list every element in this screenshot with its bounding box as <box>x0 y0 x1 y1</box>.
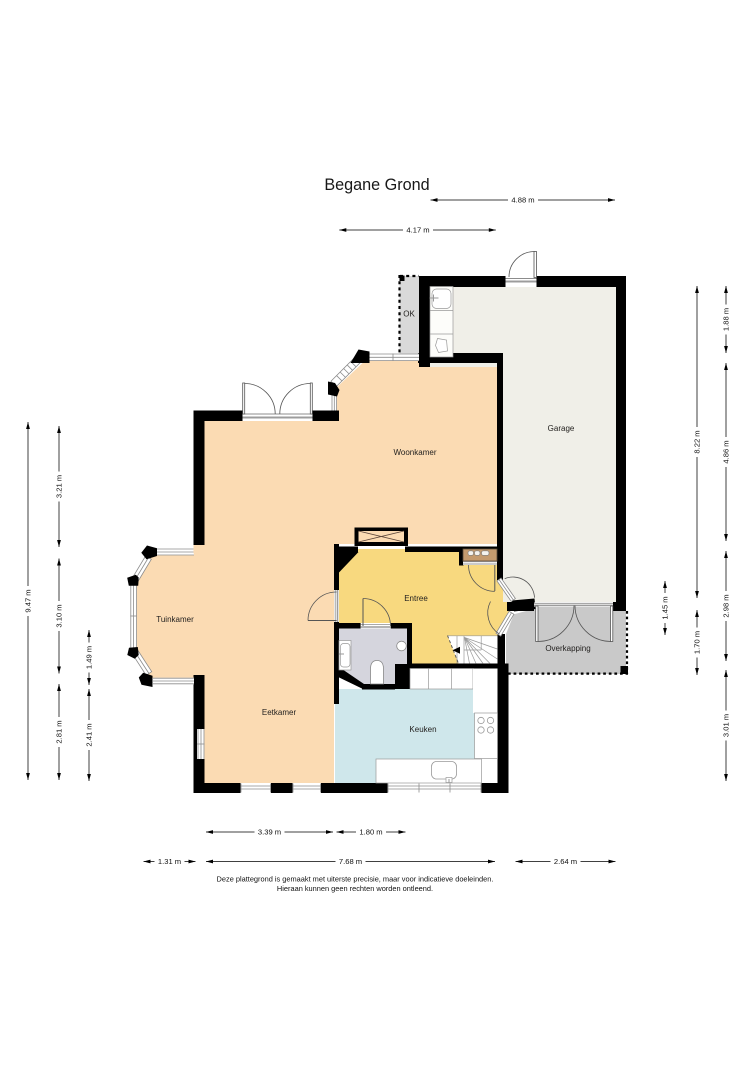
svg-text:Begane Grond: Begane Grond <box>324 176 429 194</box>
svg-text:4.86 m: 4.86 m <box>722 440 731 463</box>
svg-text:8.22 m: 8.22 m <box>693 430 702 453</box>
svg-text:Eetkamer: Eetkamer <box>262 708 297 717</box>
svg-text:1.88 m: 1.88 m <box>722 308 731 331</box>
svg-text:1.49 m: 1.49 m <box>85 646 94 669</box>
svg-text:1.31 m: 1.31 m <box>158 857 181 866</box>
svg-text:3.10 m: 3.10 m <box>55 604 64 627</box>
svg-text:2.98 m: 2.98 m <box>722 594 731 617</box>
svg-text:2.81 m: 2.81 m <box>55 720 64 743</box>
svg-text:3.01 m: 3.01 m <box>722 714 731 737</box>
svg-text:OK: OK <box>403 310 415 319</box>
svg-text:1.80 m: 1.80 m <box>359 828 382 837</box>
svg-text:3.39 m: 3.39 m <box>258 828 281 837</box>
svg-text:Overkapping: Overkapping <box>545 644 590 653</box>
svg-text:1.45 m: 1.45 m <box>661 596 670 619</box>
svg-text:4.88 m: 4.88 m <box>511 196 534 205</box>
svg-text:3.21 m: 3.21 m <box>55 475 64 498</box>
svg-text:Garage: Garage <box>548 424 575 433</box>
svg-text:4.17 m: 4.17 m <box>406 226 429 235</box>
svg-text:2.64 m: 2.64 m <box>554 857 577 866</box>
svg-text:2.41 m: 2.41 m <box>85 723 94 746</box>
svg-text:Entree: Entree <box>404 594 428 603</box>
svg-text:Hieraan kunnen geen rechten wo: Hieraan kunnen geen rechten worden ontle… <box>277 884 433 893</box>
svg-text:7.68 m: 7.68 m <box>339 857 362 866</box>
svg-text:Woonkamer: Woonkamer <box>394 448 437 457</box>
svg-text:Deze plattegrond is gemaakt me: Deze plattegrond is gemaakt met uiterste… <box>217 875 494 884</box>
svg-text:Keuken: Keuken <box>409 725 436 734</box>
svg-text:9.47 m: 9.47 m <box>24 589 33 612</box>
svg-text:1.70 m: 1.70 m <box>693 631 702 654</box>
svg-text:Tuinkamer: Tuinkamer <box>156 615 194 624</box>
